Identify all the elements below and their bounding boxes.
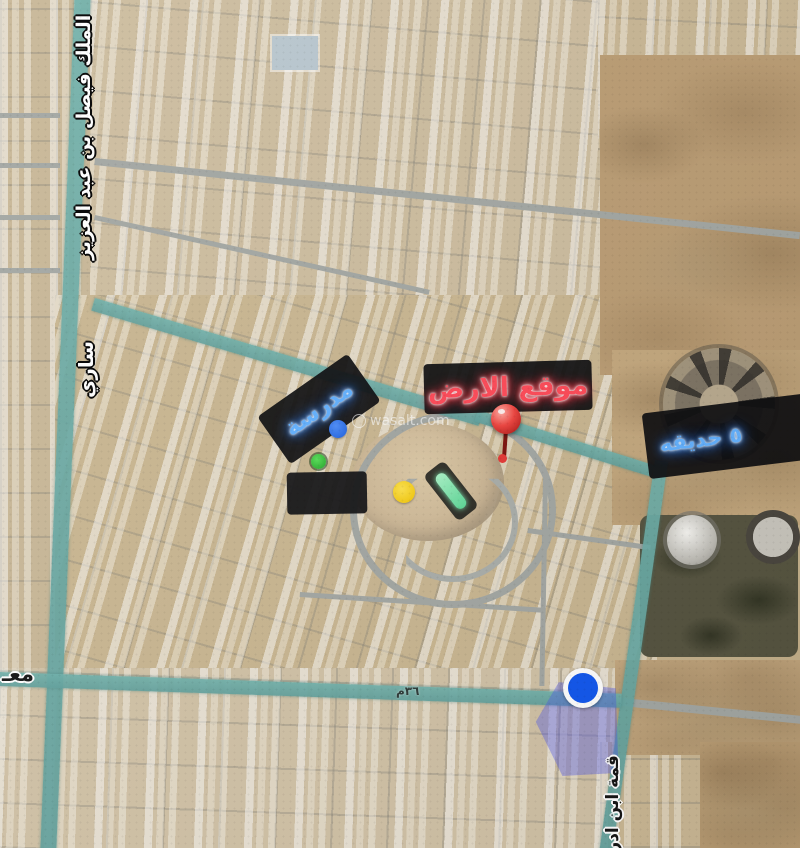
watermark-text: wasalt.com [370, 413, 450, 429]
road [0, 113, 60, 118]
dome-structure [667, 515, 717, 565]
watermark-logo-icon [352, 414, 366, 428]
location-pin-ball [491, 404, 521, 434]
yellow-dot-marker[interactable] [393, 481, 415, 503]
road [0, 268, 60, 273]
selected-area-circle[interactable] [563, 668, 603, 708]
land-location-label-text: موقع الارض [427, 369, 588, 404]
satellite-map: مدرسة ٥ حديقه موقع الارض الملك فيصل بن ع… [0, 0, 800, 848]
street-name-partial: معـ [2, 662, 34, 686]
location-pin-tip [498, 454, 507, 463]
location-pin-stem [502, 432, 508, 456]
street-name-king-faisal: الملك فيصل بن عبد العزيز [73, 15, 95, 260]
redacted-building [287, 471, 368, 514]
location-pin-glint [498, 409, 505, 414]
warehouse-building [272, 36, 318, 70]
blue-dot-marker[interactable] [329, 420, 347, 438]
green-dot-marker[interactable] [311, 454, 326, 469]
park-label-text: ٥ حديقه [658, 423, 743, 457]
street-name-sari: ساري [74, 341, 98, 398]
road-width-label: ٣٦م [396, 684, 419, 698]
tank-structure [746, 510, 800, 564]
location-pin[interactable] [489, 402, 529, 466]
road [0, 163, 60, 168]
watermark: wasalt.com [352, 413, 450, 429]
road [0, 215, 60, 220]
street-name-ibn-idris: قمة ابن ادريس [603, 755, 623, 848]
map-district [90, 0, 622, 312]
desert-area [700, 742, 800, 848]
selected-area-circle-inner [568, 673, 598, 703]
